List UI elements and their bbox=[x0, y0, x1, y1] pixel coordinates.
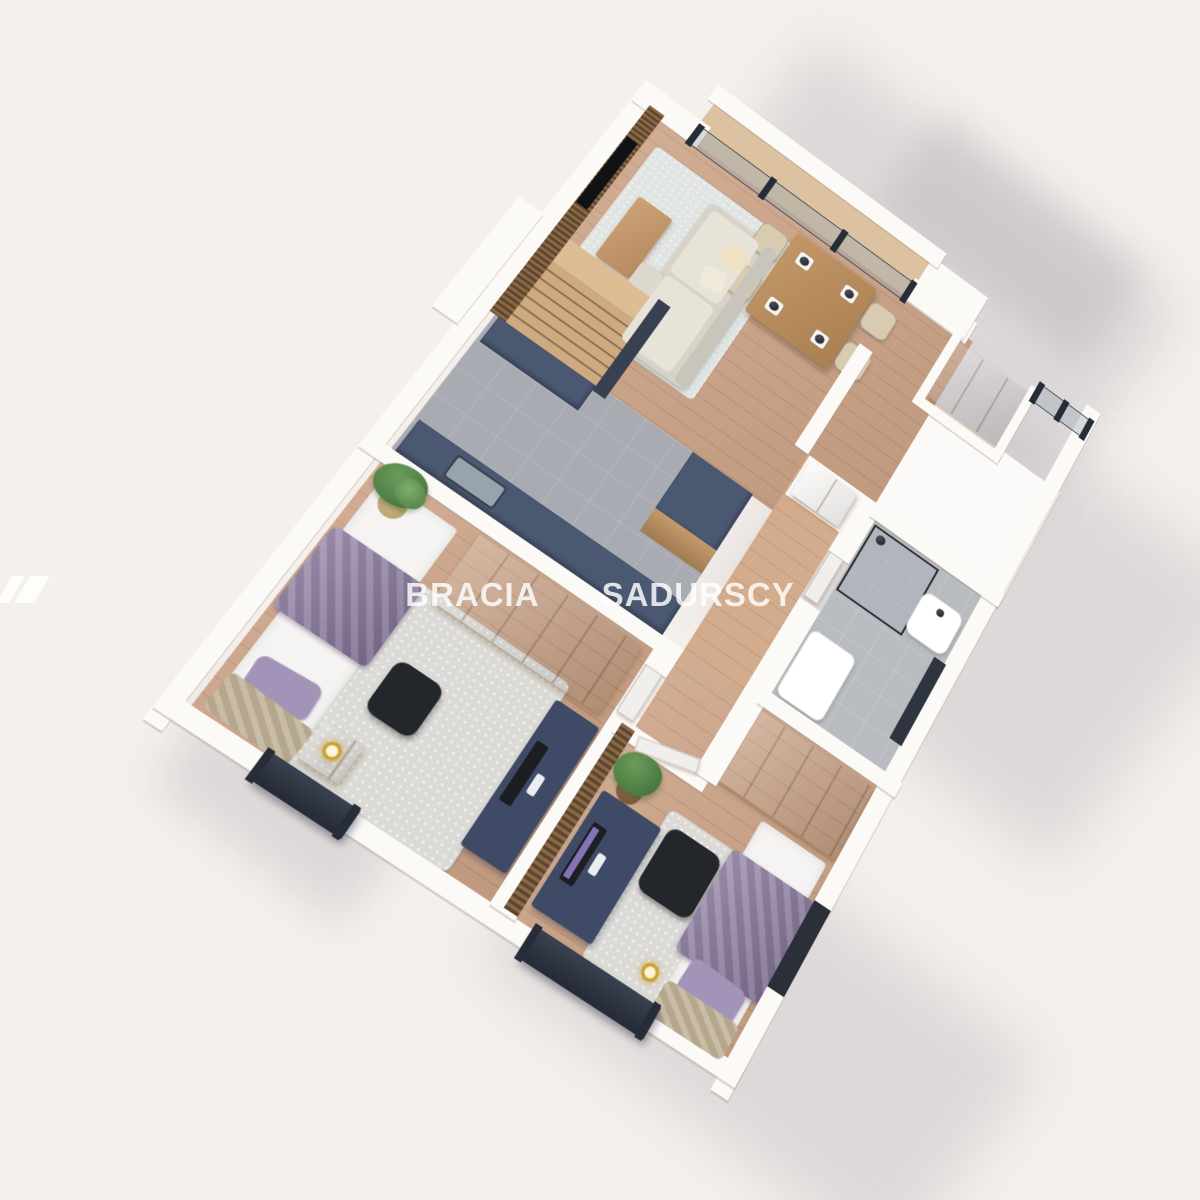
floor-plan-render: BRACIA SADURSCY bbox=[0, 0, 1200, 1200]
brand-logo-icon bbox=[550, 582, 592, 609]
watermark-brand-left: BRACIA bbox=[405, 576, 539, 614]
watermark: BRACIA SADURSCY bbox=[0, 576, 1200, 614]
watermark-brand-right: SADURSCY bbox=[602, 576, 795, 614]
